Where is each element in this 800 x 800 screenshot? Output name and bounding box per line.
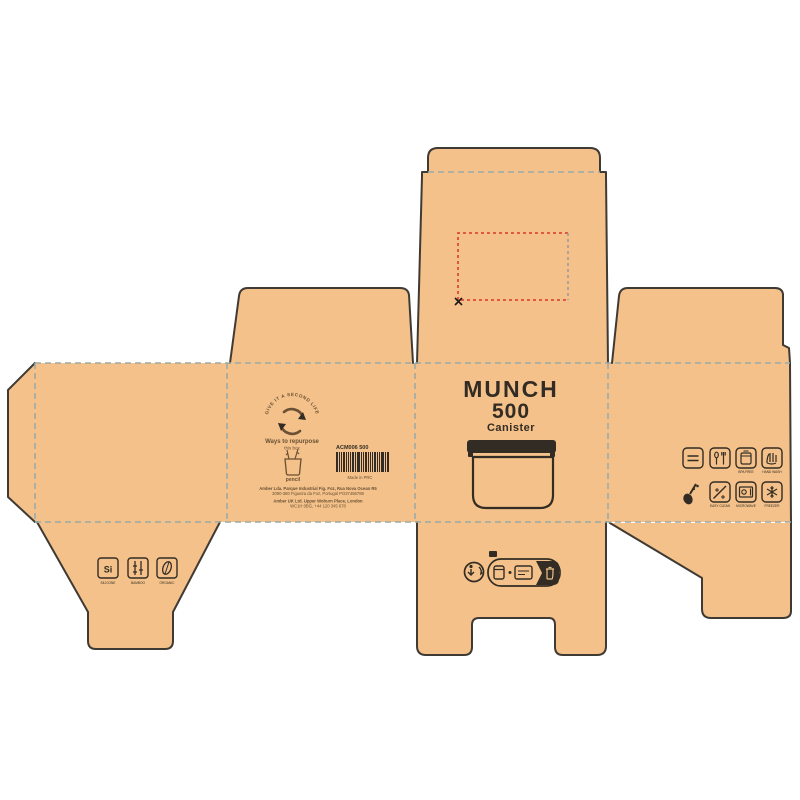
- barcode-bar: [350, 452, 351, 472]
- barcode-bar: [365, 452, 367, 472]
- bottom-funnel-flap-fill: [37, 522, 220, 649]
- barcode-bar: [379, 452, 380, 472]
- organic-caption: ORGANIC: [160, 581, 176, 585]
- barcode-bar: [352, 452, 354, 472]
- silicone-icon-text: Si: [104, 565, 113, 575]
- canister-lid: [467, 440, 556, 453]
- barcode-bar: [372, 452, 373, 472]
- microwave-caption: MICROWAVE: [736, 504, 756, 508]
- top-flap-right-fill: [612, 288, 790, 363]
- barcode-bar: [385, 452, 386, 472]
- barcode-bar: [346, 452, 347, 472]
- made-in-label: Made in PRC: [348, 475, 373, 480]
- dieline-canvas: MUNCH 500 Canister GIVE IT A SECOND LIFE…: [0, 0, 800, 800]
- dieline-artwork: MUNCH 500 Canister GIVE IT A SECOND LIFE…: [0, 0, 800, 800]
- barcode-bar: [370, 452, 371, 472]
- product-name: MUNCH: [463, 376, 559, 402]
- address-line-2: 3090-380 Figueira da Foz, Portugal PO374…: [272, 491, 364, 496]
- dieline-silhouette: [8, 148, 791, 655]
- barcode-bar: [336, 452, 338, 472]
- top-flap-left-fill: [230, 288, 413, 363]
- barcode-bar: [363, 452, 364, 472]
- barcode-number: ACM006 500: [336, 445, 368, 451]
- barcode-bar: [377, 452, 378, 472]
- barcode-bar: [355, 452, 356, 472]
- repurpose-item-label: pencil: [286, 477, 301, 483]
- barcode-bar: [374, 452, 376, 472]
- hand-wash-caption: HAND WASH: [762, 470, 782, 474]
- barcode-bar: [387, 452, 389, 472]
- bpa-free-caption: BPA FREE: [738, 470, 753, 474]
- main-band-fill: [35, 363, 790, 522]
- silicone-caption: SILICONE: [101, 581, 116, 585]
- front-bottom-flap-fill: [417, 522, 606, 655]
- barcode-bar: [348, 452, 349, 472]
- product-subtitle: Canister: [487, 422, 535, 434]
- barcode-bar: [368, 452, 369, 472]
- repurpose-heading: Ways to repurpose: [265, 439, 319, 445]
- separator-dot: [509, 571, 512, 574]
- barcode-bar: [341, 452, 342, 472]
- lid-assembly-fill: [417, 148, 608, 363]
- freezer-caption: FREEZER: [765, 504, 781, 508]
- barcode-bar: [381, 452, 384, 472]
- product-size: 500: [492, 400, 530, 423]
- easy-clean-caption: EASY CLEAN: [710, 504, 731, 508]
- address-line-4: WC1H 0BG, +44 120 345 678: [290, 504, 346, 509]
- barcode-bar: [361, 452, 362, 472]
- bamboo-caption: BAMBOO: [131, 581, 146, 585]
- barcode-bar: [339, 452, 340, 472]
- barcode-bar: [357, 452, 360, 472]
- sorting-tag: [489, 551, 497, 557]
- barcode-bar: [343, 452, 345, 472]
